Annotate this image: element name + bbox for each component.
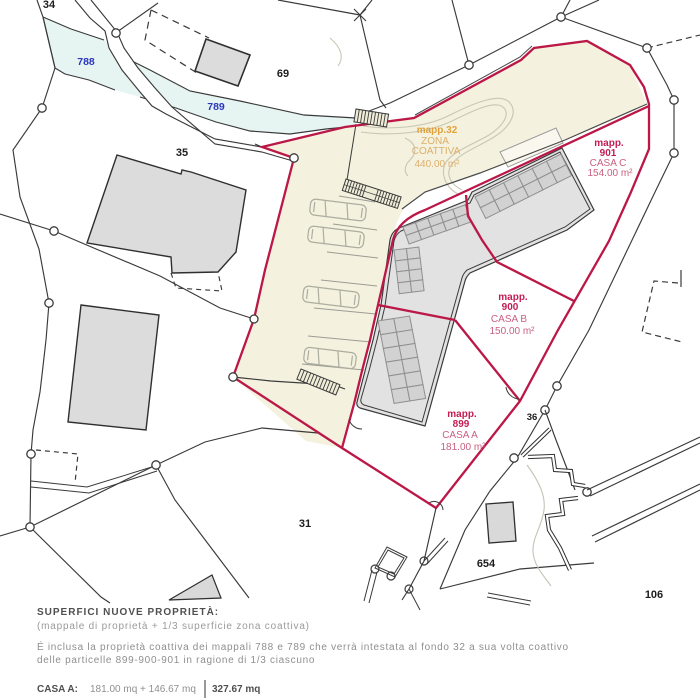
- svg-text:CASA B: CASA B: [491, 314, 527, 325]
- svg-text:CASA A: CASA A: [442, 430, 478, 441]
- svg-text:181.00 m²: 181.00 m²: [440, 442, 486, 453]
- svg-text:154.00 m²: 154.00 m²: [587, 168, 633, 179]
- svg-text:SUPERFICI NUOVE PROPRIETÀ:: SUPERFICI NUOVE PROPRIETÀ:: [37, 605, 219, 618]
- svg-text:69: 69: [277, 68, 289, 80]
- svg-text:106: 106: [645, 589, 663, 601]
- svg-text:900: 900: [502, 302, 519, 313]
- svg-text:É inclusa la proprietà coattiv: É inclusa la proprietà coattiva dei mapp…: [37, 640, 569, 653]
- svg-text:34: 34: [43, 0, 56, 11]
- svg-text:31: 31: [299, 518, 311, 530]
- svg-text:COATTIVA: COATTIVA: [412, 146, 461, 157]
- svg-text:788: 788: [77, 56, 95, 68]
- svg-text:(mappale di proprietà + 1/3 su: (mappale di proprietà + 1/3 superficie z…: [37, 621, 310, 632]
- svg-text:delle particelle 899-900-901 i: delle particelle 899-900-901 in ragione …: [37, 655, 315, 666]
- svg-text:899: 899: [453, 419, 470, 430]
- svg-text:150.00 m²: 150.00 m²: [489, 326, 535, 337]
- svg-text:654: 654: [477, 558, 496, 570]
- svg-text:440.00 m²: 440.00 m²: [414, 159, 460, 170]
- svg-text:181.00 mq + 146.67 mq: 181.00 mq + 146.67 mq: [90, 684, 196, 695]
- svg-text:mapp.32: mapp.32: [417, 125, 458, 136]
- svg-text:789: 789: [207, 101, 225, 113]
- svg-text:CASA A:: CASA A:: [37, 684, 78, 695]
- svg-text:35: 35: [176, 147, 188, 159]
- svg-text:36: 36: [527, 412, 538, 423]
- svg-text:327.67 mq: 327.67 mq: [212, 684, 260, 695]
